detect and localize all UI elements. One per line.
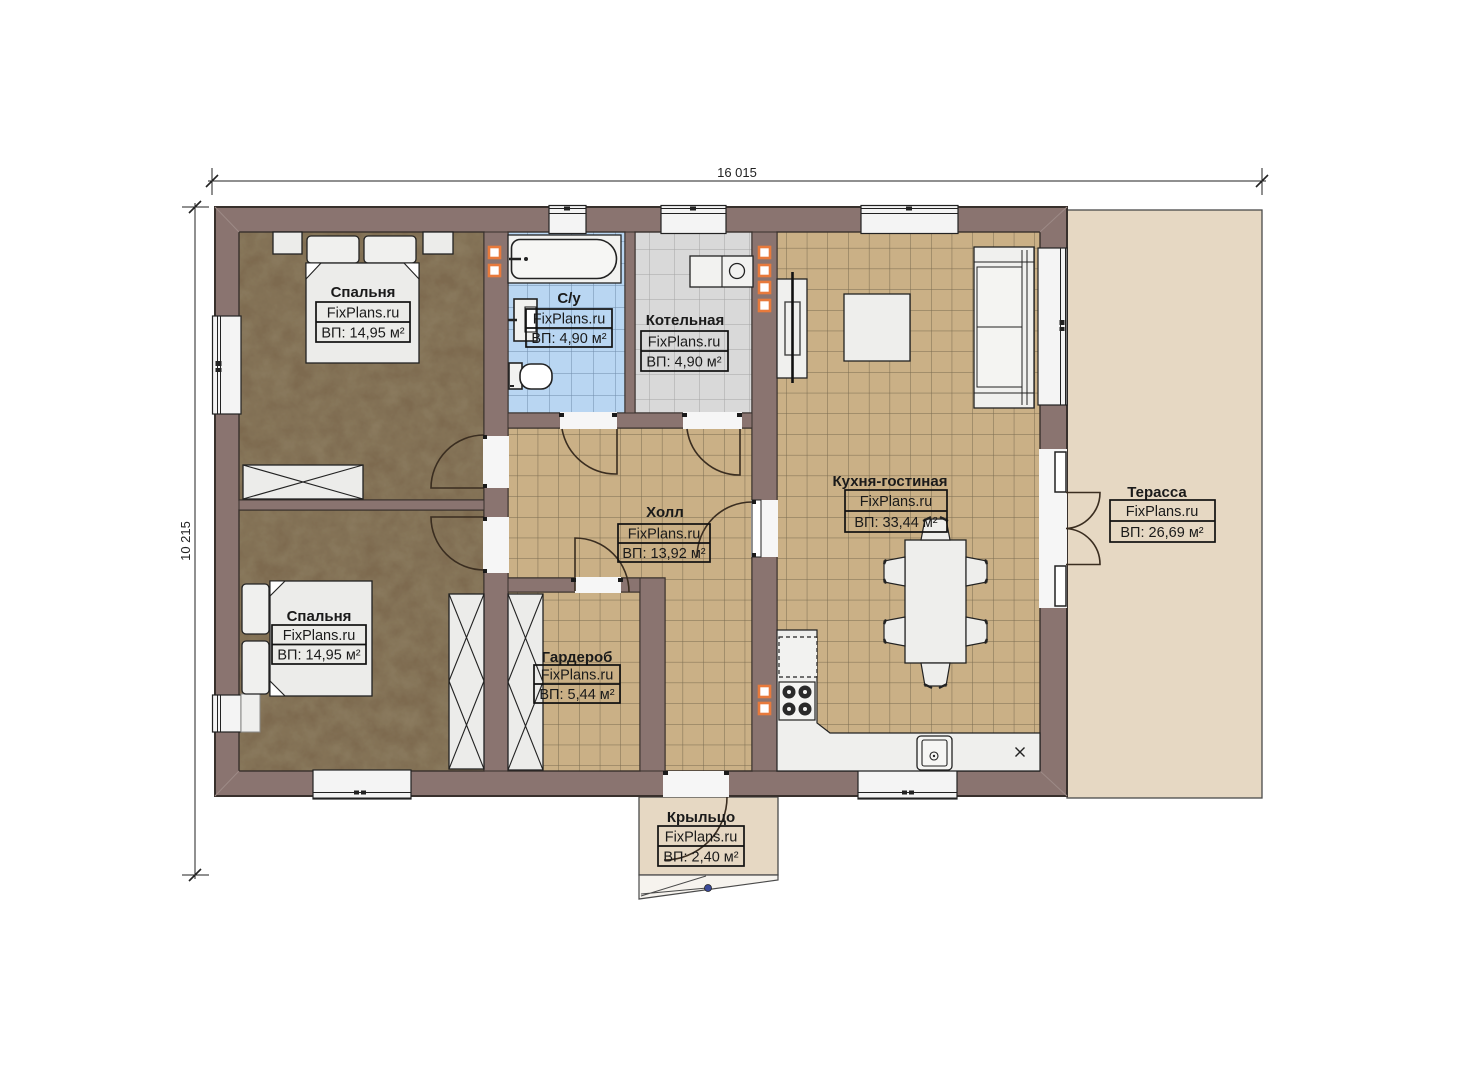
svg-text:ВП: 14,95 м²: ВП: 14,95 м² — [277, 648, 360, 664]
svg-text:FixPlans.ru: FixPlans.ru — [1126, 504, 1199, 520]
svg-text:FixPlans.ru: FixPlans.ru — [860, 494, 933, 510]
svg-text:Спальня: Спальня — [287, 608, 352, 625]
svg-text:ВП: 14,95 м²: ВП: 14,95 м² — [321, 326, 404, 342]
svg-text:16 015: 16 015 — [717, 165, 757, 180]
svg-text:ВП: 4,90 м²: ВП: 4,90 м² — [531, 331, 606, 347]
svg-text:Холл: Холл — [646, 504, 684, 521]
svg-text:FixPlans.ru: FixPlans.ru — [327, 306, 400, 322]
svg-text:ВП: 4,90 м²: ВП: 4,90 м² — [646, 355, 721, 371]
svg-text:FixPlans.ru: FixPlans.ru — [541, 668, 614, 684]
svg-text:ВП: 13,92 м²: ВП: 13,92 м² — [622, 546, 705, 562]
svg-text:ВП: 2,40 м²: ВП: 2,40 м² — [663, 850, 738, 866]
svg-text:FixPlans.ru: FixPlans.ru — [628, 527, 701, 543]
svg-text:ВП: 5,44 м²: ВП: 5,44 м² — [539, 687, 614, 703]
svg-text:Спальня: Спальня — [331, 284, 396, 301]
svg-text:Крыльцо: Крыльцо — [667, 809, 735, 826]
svg-text:FixPlans.ru: FixPlans.ru — [665, 830, 738, 846]
svg-text:ВП: 26,69 м²: ВП: 26,69 м² — [1120, 525, 1203, 541]
svg-text:Терасса: Терасса — [1127, 484, 1187, 501]
svg-text:Котельная: Котельная — [646, 312, 725, 329]
svg-text:10 215: 10 215 — [178, 521, 193, 561]
svg-text:С/у: С/у — [557, 290, 581, 307]
svg-text:FixPlans.ru: FixPlans.ru — [533, 312, 606, 328]
svg-text:ВП: 33,44 м²: ВП: 33,44 м² — [854, 515, 937, 531]
svg-text:FixPlans.ru: FixPlans.ru — [283, 628, 356, 644]
svg-text:FixPlans.ru: FixPlans.ru — [648, 335, 721, 351]
svg-text:Кухня-гостиная: Кухня-гостиная — [833, 473, 948, 490]
svg-text:Гардероб: Гардероб — [542, 649, 613, 666]
